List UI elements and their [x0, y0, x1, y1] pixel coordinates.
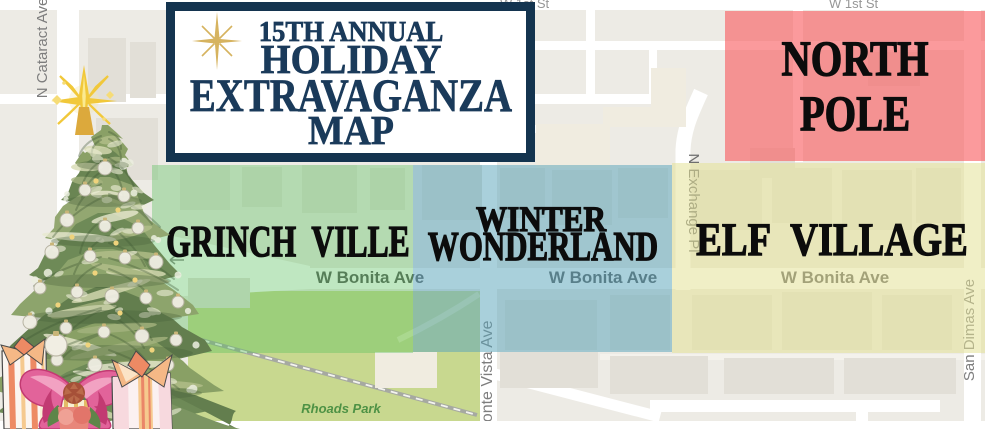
svg-text:W 1st St: W 1st St	[829, 0, 879, 11]
